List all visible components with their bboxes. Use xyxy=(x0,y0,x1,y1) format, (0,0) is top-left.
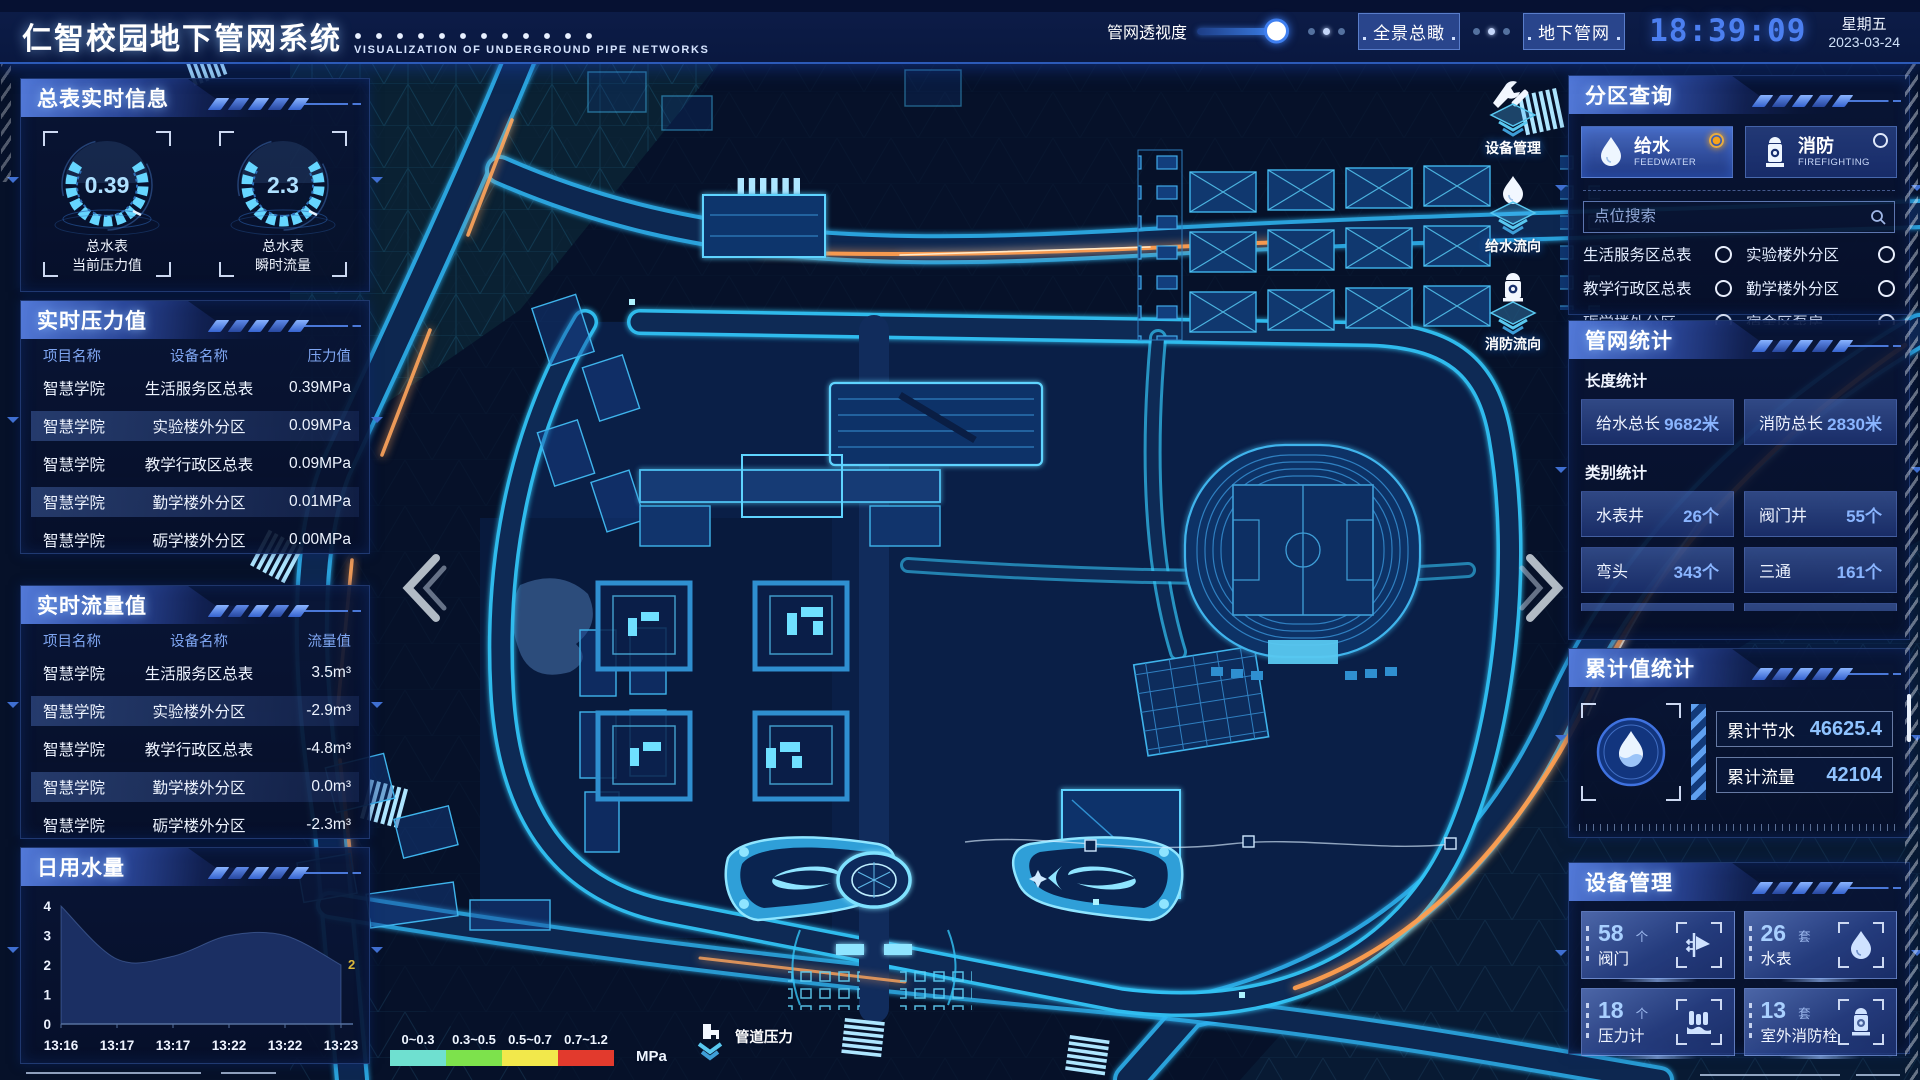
table-header: 项目名称 设备名称 压力值 xyxy=(31,343,359,367)
stat-box-fire-length: 消防总长 2830米 xyxy=(1744,399,1897,445)
legend-unit: MPa xyxy=(636,1048,667,1065)
flow-panel: 实时流量值 项目名称 设备名称 流量值 智慧学院生活服务区总表3.5m³ 智慧学… xyxy=(20,585,370,839)
hydrant-icon xyxy=(1760,135,1790,169)
totals-panel: 累计值统计 累计节水 46625.4 xyxy=(1568,648,1910,838)
device-card-water-meter[interactable]: 26套 水表 xyxy=(1744,911,1898,979)
svg-text:13:22: 13:22 xyxy=(212,1038,247,1053)
valve-icon xyxy=(1684,930,1714,960)
svg-text:13:17: 13:17 xyxy=(156,1038,191,1053)
panel-title: 管网统计 xyxy=(1569,325,1673,355)
search-icon[interactable] xyxy=(1870,209,1886,225)
tool-fire-flow[interactable]: 消防流向 xyxy=(1477,270,1549,354)
table-row: 智慧学院实验楼外分区-2.9m³ xyxy=(31,696,359,726)
stat-box-elbow: 弯头 343个 xyxy=(1581,547,1734,593)
radio-icon[interactable] xyxy=(1878,280,1895,297)
device-card-valve[interactable]: 58个 阀门 xyxy=(1581,911,1735,979)
map-tools: 设备管理 给水流向 xyxy=(1466,74,1560,354)
network-stats-panel: 管网统计 长度统计 给水总长 9682米 消防总长 2830米 类别统计 水表井… xyxy=(1568,320,1910,640)
zone-item[interactable]: 生活服务区总表 xyxy=(1583,241,1732,267)
table-row: 智慧学院勤学楼外分区0.0m³ xyxy=(31,772,359,802)
gauge-flow: 2.3 总水表 瞬时流量 xyxy=(219,131,347,277)
svg-text:13:23: 13:23 xyxy=(324,1038,359,1053)
table-row: 智慧学院生活服务区总表3.5m³ xyxy=(31,658,359,688)
top-header: 仁智校园地下管网系统 VISUALIZATION OF UNDERGROUND … xyxy=(0,0,1920,64)
radio-icon[interactable] xyxy=(1715,280,1732,297)
total-flow-row: 累计流量 42104 xyxy=(1716,757,1893,793)
hydrant-icon xyxy=(1503,273,1523,302)
gauge-label-line1: 总水表 xyxy=(72,237,142,256)
tools-icon xyxy=(1493,81,1529,108)
pressure-gauge-icon xyxy=(1684,1007,1714,1037)
panel-title: 设备管理 xyxy=(1569,867,1673,897)
svg-text:2: 2 xyxy=(43,958,51,973)
tick-ruler xyxy=(1579,824,1899,831)
svg-text:4: 4 xyxy=(43,899,51,914)
panel-title: 实时压力值 xyxy=(21,305,147,335)
svg-text:13:16: 13:16 xyxy=(44,1038,79,1053)
svg-text:3: 3 xyxy=(43,929,51,944)
overview-button[interactable]: 全景总瞰 xyxy=(1358,13,1460,50)
tab-radio[interactable] xyxy=(1873,133,1888,148)
tab-radio[interactable] xyxy=(1709,133,1724,148)
right-edge-stripe xyxy=(1905,40,1918,1080)
app-subtitle: VISUALIZATION OF UNDERGROUND PIPE NETWOR… xyxy=(354,44,709,56)
pipe-opacity-label: 管网透视度 xyxy=(1107,19,1187,43)
tab-feedwater[interactable]: 给水 FEEDWATER xyxy=(1581,126,1733,178)
svg-text:13:17: 13:17 xyxy=(100,1038,135,1053)
date-label: 2023-03-24 xyxy=(1828,34,1900,50)
clock-time: 18:39:09 xyxy=(1649,13,1806,49)
water-drop-icon xyxy=(1503,176,1523,204)
panel-title: 分区查询 xyxy=(1569,80,1673,110)
map-next-chevron[interactable] xyxy=(1516,550,1574,626)
gauge-dial: 2.3 xyxy=(223,131,343,235)
radio-icon[interactable] xyxy=(1878,246,1895,263)
tool-label: 消防流向 xyxy=(1485,334,1541,354)
pipe-pressure-icon xyxy=(693,1020,727,1066)
legend-color-bar xyxy=(390,1050,614,1066)
gauge-value: 0.39 xyxy=(85,172,130,198)
legend-swatch xyxy=(446,1050,502,1066)
daily-water-chart: 0123413:1613:1713:1713:2213:2213:232 xyxy=(27,888,361,1060)
hydrant-icon xyxy=(1847,1007,1875,1037)
panel-title: 日用水量 xyxy=(21,852,125,882)
tool-label: 给水流向 xyxy=(1485,236,1541,256)
underground-button[interactable]: 地下管网 xyxy=(1523,13,1625,50)
daily-water-panel: 日用水量 0123413:1613:1713:1713:2213:2213:23… xyxy=(20,847,370,1064)
panel-title: 累计值统计 xyxy=(1569,653,1695,683)
water-total-icon-tile xyxy=(1581,703,1681,801)
gauge-dial: 0.39 xyxy=(47,131,167,235)
radio-icon[interactable] xyxy=(1715,246,1732,263)
tool-label: 设备管理 xyxy=(1485,138,1541,158)
scrollbar-thumb[interactable] xyxy=(1907,694,1911,742)
table-row: 智慧学院生活服务区总表0.39MPa xyxy=(31,373,359,403)
gauge-value: 2.3 xyxy=(267,172,299,198)
stat-box-tee: 三通 161个 xyxy=(1744,547,1897,593)
svg-text:0: 0 xyxy=(43,1017,51,1032)
zone-search-input[interactable] xyxy=(1592,207,1870,227)
zone-item-list: 生活服务区总表 实验楼外分区 教学行政区总表 勤学楼外分区 砺学楼外分区 宿舍区… xyxy=(1583,241,1895,325)
device-card-hydrant[interactable]: 13套 室外消防栓 xyxy=(1744,988,1898,1056)
meter-info-panel: 总表实时信息 0.39 总水表 当前压力值 xyxy=(20,78,370,292)
footer-decor-line xyxy=(26,1072,276,1074)
stat-box-feedwater-length: 给水总长 9682米 xyxy=(1581,399,1734,445)
legend-swatch xyxy=(502,1050,558,1066)
device-card-pressure-gauge[interactable]: 18个 压力计 xyxy=(1581,988,1735,1056)
table-row: 智慧学院勤学楼外分区0.01MPa xyxy=(31,487,359,517)
legend-range-labels: 0~0.3 0.3~0.5 0.5~0.7 0.7~1.2 xyxy=(390,1032,614,1047)
zone-item[interactable]: 教学行政区总表 xyxy=(1583,275,1732,301)
water-drop-icon xyxy=(1594,715,1668,789)
svg-text:2: 2 xyxy=(348,957,355,972)
total-saving-row: 累计节水 46625.4 xyxy=(1716,711,1893,747)
gauge-label-line2: 当前压力值 xyxy=(72,256,142,275)
panel-title: 总表实时信息 xyxy=(21,83,169,113)
tab-firefighting[interactable]: 消防 FIREFIGHTING xyxy=(1745,126,1897,178)
table-row: 智慧学院砺学楼外分区-2.3m³ xyxy=(31,810,359,834)
table-row: 智慧学院实验楼外分区0.09MPa xyxy=(31,411,359,441)
diamond-pedestal xyxy=(1491,104,1535,135)
tab-label: 给水 xyxy=(1634,136,1696,157)
table-row: 智慧学院砺学楼外分区0.00MPa xyxy=(31,525,359,549)
category-stats-label: 类别统计 xyxy=(1585,461,1893,483)
tab-sublabel: FIREFIGHTING xyxy=(1798,157,1870,168)
app-brand: 仁智校园地下管网系统 VISUALIZATION OF UNDERGROUND … xyxy=(22,14,709,58)
weekday-label: 星期五 xyxy=(1842,13,1887,34)
stat-box-meter-well: 水表井 26个 xyxy=(1581,491,1734,537)
device-panel: 设备管理 58个 阀门 26套 xyxy=(1568,862,1910,1054)
water-meter-icon xyxy=(1847,929,1875,961)
tool-device-management[interactable]: 设备管理 xyxy=(1477,74,1549,158)
pressure-legend: 0~0.3 0.3~0.5 0.5~0.7 0.7~1.2 MPa 管道压力 xyxy=(390,1020,793,1066)
panel-title: 实时流量值 xyxy=(21,590,147,620)
dashboard: 仁智校园地下管网系统 VISUALIZATION OF UNDERGROUND … xyxy=(0,0,1920,1080)
tab-label: 消防 xyxy=(1798,136,1870,157)
diamond-pedestal xyxy=(1491,302,1535,333)
table-header: 项目名称 设备名称 流量值 xyxy=(31,628,359,652)
dot-separator xyxy=(1473,28,1510,35)
stat-box-clipped xyxy=(1581,603,1734,611)
gauge-label-line2: 瞬时流量 xyxy=(255,256,311,275)
footer-decor-line xyxy=(1700,1074,1900,1076)
table-row: 智慧学院教学行政区总表0.09MPa xyxy=(31,449,359,479)
tool-feedwater-flow[interactable]: 给水流向 xyxy=(1477,172,1549,256)
zone-item[interactable]: 实验楼外分区 xyxy=(1746,241,1895,267)
stat-box-valve-well: 阀门井 55个 xyxy=(1744,491,1897,537)
title-dots xyxy=(354,32,604,41)
striped-divider xyxy=(1691,704,1706,800)
pressure-panel: 实时压力值 项目名称 设备名称 压力值 智慧学院生活服务区总表0.39MPa 智… xyxy=(20,300,370,554)
zone-query-panel: 分区查询 给水 FEEDWATER xyxy=(1568,75,1910,315)
app-title: 仁智校园地下管网系统 xyxy=(22,14,342,58)
dashed-divider xyxy=(1583,190,1895,191)
clock-date: 星期五 2023-03-24 xyxy=(1828,13,1900,50)
water-drop-icon xyxy=(1596,135,1626,169)
map-prev-chevron[interactable] xyxy=(392,550,450,626)
dot-separator xyxy=(1308,28,1345,35)
svg-text:1: 1 xyxy=(43,988,51,1003)
left-edge-stripe xyxy=(1,62,11,182)
svg-text:13:22: 13:22 xyxy=(268,1038,303,1053)
zone-search[interactable] xyxy=(1583,201,1895,233)
legend-swatch xyxy=(558,1050,614,1066)
pipe-opacity-slider[interactable] xyxy=(1197,28,1285,35)
table-row: 智慧学院教学行政区总表-4.8m³ xyxy=(31,734,359,764)
gauge-label-line1: 总水表 xyxy=(255,237,311,256)
legend-swatch xyxy=(390,1050,446,1066)
diamond-pedestal xyxy=(1491,202,1535,233)
slider-knob[interactable] xyxy=(1264,19,1289,44)
tab-sublabel: FEEDWATER xyxy=(1634,157,1696,168)
length-stats-label: 长度统计 xyxy=(1585,369,1893,391)
legend-pressure-label: 管道压力 xyxy=(735,1026,793,1047)
zone-item[interactable]: 勤学楼外分区 xyxy=(1746,275,1895,301)
gauge-pressure: 0.39 总水表 当前压力值 xyxy=(43,131,171,277)
stat-box-clipped xyxy=(1744,603,1897,611)
